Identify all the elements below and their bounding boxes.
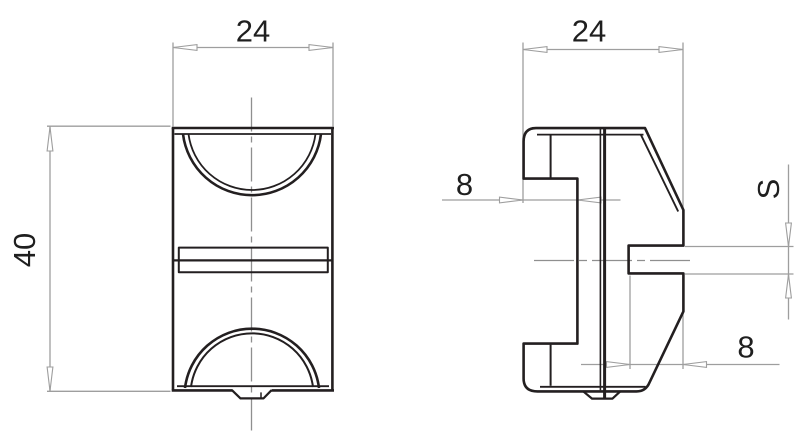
front-height-dimension-label: 40 [7,233,42,267]
arrowhead-icon [523,47,547,53]
drawing-canvas: 24 40 24 8 8 S [0,0,800,438]
arrowhead-icon [683,362,707,368]
side-view [524,128,684,399]
arrowhead-icon [173,45,197,51]
side-slot-depth-extension-lines [630,276,683,370]
front-height-extension-lines [47,126,171,391]
arrowhead-icon [309,45,333,51]
arrowheads-layer [47,45,791,391]
arrowhead-icon [786,223,792,247]
front-view [172,128,334,398]
arrowhead-icon [500,197,524,203]
side-slot-depth-dimension-label: 8 [737,330,754,365]
side-chamfer-inner [641,135,678,212]
side-slot-width-extension-lines [685,247,794,275]
front-width-extension-lines [173,43,333,127]
arrowhead-icon [47,367,53,391]
arrowhead-icon [607,362,631,368]
dimension-labels: 24 40 24 8 8 S [7,14,786,365]
front-width-dimension-label: 24 [236,14,270,49]
side-step-dimension-label: 8 [456,167,473,202]
dimension-lines-layer [47,43,794,431]
side-slot-width-dimension-label: S [751,179,786,200]
side-width-dimension-label: 24 [572,14,606,49]
arrowhead-icon [786,275,792,299]
arrowhead-icon [578,197,602,203]
arrowhead-icon [47,127,53,151]
technical-drawing: 24 40 24 8 8 S [0,0,800,438]
arrowhead-icon [659,47,683,53]
